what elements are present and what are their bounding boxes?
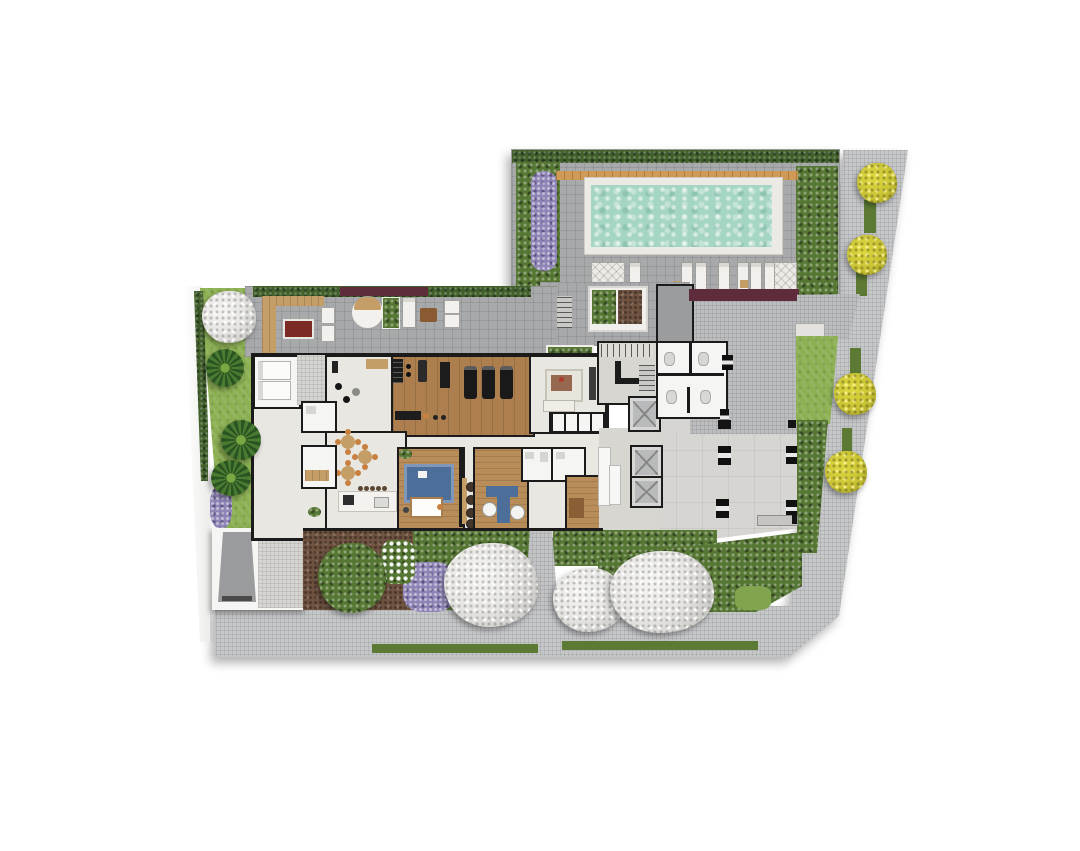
toilet (666, 390, 677, 404)
elevator (630, 445, 663, 480)
daybed-back (354, 297, 381, 310)
white-flower-bed (381, 540, 415, 584)
drive-entry (258, 532, 304, 608)
maroon-hedge (689, 289, 797, 301)
dining-table-set (358, 450, 372, 464)
large-bush (318, 543, 386, 613)
lawn-patch (735, 586, 771, 610)
elevator (630, 476, 663, 508)
shrub-bed (796, 166, 838, 294)
planter-greens (592, 290, 616, 324)
treadmill (464, 366, 477, 399)
lockers (549, 412, 605, 433)
toilet (698, 352, 709, 366)
structural-column (788, 420, 796, 428)
flowering-tree (444, 543, 538, 627)
desk-chair (510, 505, 525, 520)
gym-bench (395, 411, 421, 420)
garage-ramp (218, 532, 256, 602)
party-room (325, 431, 407, 537)
wall (687, 387, 690, 413)
lawn-strip (796, 336, 842, 424)
street-tree (847, 235, 887, 275)
door-leaf (609, 465, 621, 505)
toy (418, 471, 427, 478)
desk-chair (482, 502, 497, 517)
stair-flight (639, 365, 655, 391)
fire-table (283, 319, 314, 339)
salon-chair (343, 396, 350, 403)
salon-chair (332, 361, 338, 373)
sun-lounger (695, 262, 707, 291)
grass-verge (864, 200, 876, 233)
massage-bed (258, 361, 291, 380)
fixture (525, 452, 534, 459)
lounger-mat (774, 262, 797, 291)
round-daybed (351, 296, 384, 329)
grass-verge (372, 644, 538, 653)
gym-room (391, 355, 535, 437)
hall (297, 355, 325, 405)
bar-stools (358, 486, 363, 491)
gym-bench (418, 360, 427, 382)
palm-tree (221, 420, 261, 460)
cable-machine (440, 362, 450, 388)
treadmill (482, 366, 495, 399)
structural-column (718, 420, 731, 429)
sun-lounger (402, 297, 416, 328)
kettlebell (406, 372, 411, 377)
tv-shelf (589, 367, 596, 400)
grass-verge (856, 272, 867, 296)
structural-column (716, 499, 729, 518)
structural-column (786, 446, 797, 464)
desk (497, 496, 510, 523)
toy (437, 504, 443, 510)
armchair (444, 300, 460, 314)
planter (588, 286, 648, 332)
weight-rack (393, 359, 403, 383)
pantry-counter (569, 498, 584, 518)
maroon-hedge (340, 287, 428, 296)
coffee-table (420, 308, 437, 322)
toilet (664, 352, 675, 366)
treadmill (500, 366, 513, 399)
street-tree (825, 451, 867, 493)
toy (403, 507, 409, 513)
ramp-edge (222, 596, 252, 601)
wall (689, 343, 692, 373)
armchair (444, 314, 460, 328)
stair-flight (601, 344, 653, 357)
low-wall-end (792, 515, 797, 524)
massage-bed (258, 381, 291, 400)
flowering-tree (202, 291, 256, 343)
cooktop (343, 495, 354, 505)
grass-verge (562, 641, 758, 650)
dining-table-set (341, 466, 355, 480)
fixture (556, 452, 565, 459)
fixture (306, 406, 316, 414)
structural-column (718, 446, 731, 465)
flowering-tree (610, 551, 714, 633)
wall (303, 528, 603, 531)
street-tree (857, 163, 897, 203)
salon-table (352, 388, 360, 396)
ottoman (321, 307, 335, 324)
palm-tree (206, 349, 244, 387)
kettlebell (406, 364, 411, 369)
sun-lounger (718, 262, 730, 291)
salon-counter (366, 359, 388, 369)
pillow (559, 377, 564, 382)
site-plan-canvas (0, 0, 1080, 851)
dumbbell (441, 415, 446, 420)
planter (382, 297, 400, 329)
shrub-strip (797, 420, 831, 553)
bench (305, 470, 329, 481)
door-jamb (722, 355, 733, 370)
dining-table-set (341, 435, 355, 449)
ottoman (321, 325, 335, 342)
exercise-ball (423, 413, 429, 419)
salon-chair (335, 383, 342, 390)
dumbbell (433, 415, 438, 420)
potted-plant (308, 507, 321, 517)
sink (374, 497, 389, 508)
wall (656, 373, 724, 376)
chaise (543, 400, 575, 412)
lavender-bed (531, 171, 557, 271)
sun-lounger (750, 262, 762, 291)
street-tree (834, 373, 876, 415)
stair-wall (615, 361, 641, 384)
planter-dry-plants (618, 290, 642, 324)
potted-plant (399, 449, 412, 459)
toilet (700, 390, 711, 404)
fixture (540, 452, 548, 462)
hedge (512, 150, 839, 163)
pool-water (591, 185, 772, 247)
side-table (740, 280, 748, 288)
palm-tree (211, 460, 251, 496)
support-room (301, 445, 337, 489)
terrace-bench (262, 296, 276, 353)
grass-verge (850, 348, 861, 374)
